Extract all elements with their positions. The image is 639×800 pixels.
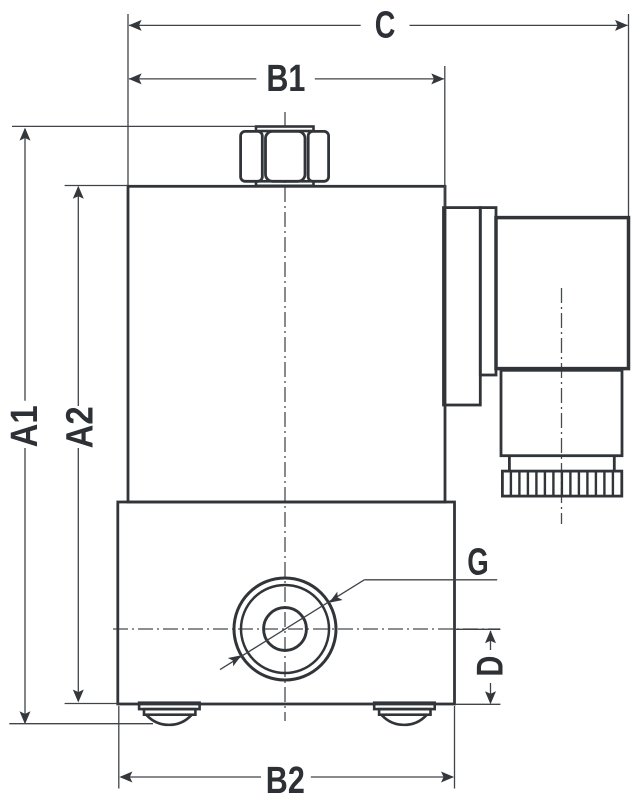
svg-text:B1: B1 [266, 58, 305, 100]
svg-text:C: C [375, 5, 396, 47]
svg-text:D: D [470, 656, 511, 677]
svg-text:B2: B2 [266, 760, 305, 800]
svg-text:A1: A1 [4, 405, 46, 447]
svg-text:G: G [467, 542, 489, 584]
svg-text:A2: A2 [60, 406, 102, 448]
